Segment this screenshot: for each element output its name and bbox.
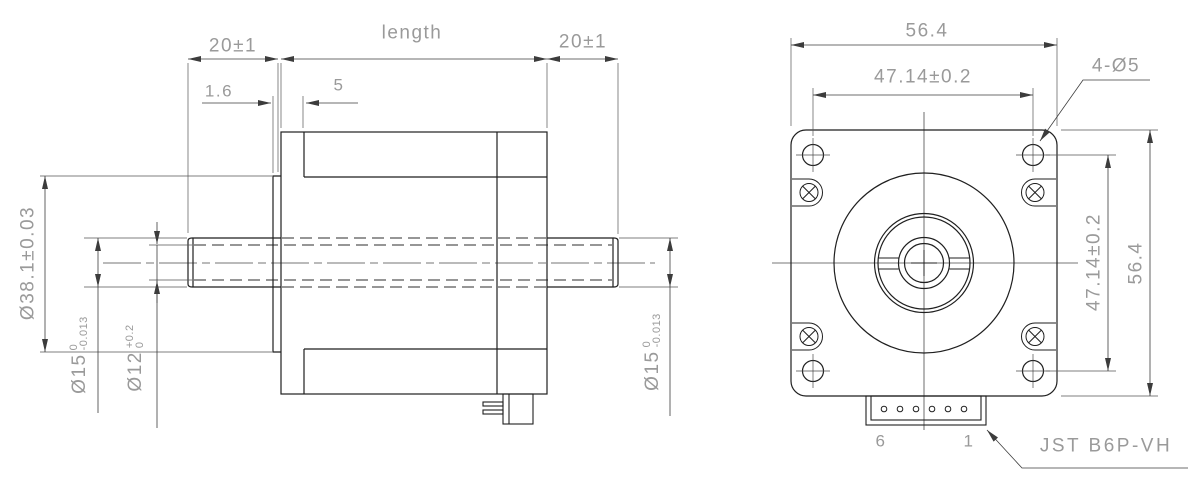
label-pin-6: 6 xyxy=(876,433,887,450)
pin-circle xyxy=(913,406,919,412)
label-mounting-holes: 4-Ø5 xyxy=(1092,57,1140,76)
front-view-geometry xyxy=(772,112,1078,430)
hidden-bore-lines xyxy=(194,245,612,280)
dim-label-height: 56.4 xyxy=(1127,242,1146,285)
screw-tab xyxy=(1021,323,1056,350)
tolerance-lower: 0 xyxy=(135,324,145,348)
front-connector-inner xyxy=(871,396,981,420)
dim-label-front-section: 5 xyxy=(334,77,345,94)
dim-label-rear-shaft-length: 20±1 xyxy=(559,33,607,52)
dim-label-shaft-diameter-right: Ø150-0.013 xyxy=(643,313,663,391)
screw-head xyxy=(800,328,818,346)
pin-circle xyxy=(945,406,951,412)
screw-head xyxy=(800,184,818,202)
front-view-centerlines xyxy=(772,112,1078,430)
dim-value: Ø15 xyxy=(642,350,663,390)
dim-label-boss-depth: 1.6 xyxy=(205,83,233,100)
side-connector-body xyxy=(503,394,533,424)
dim-value: Ø12 xyxy=(125,351,146,391)
pin-circle xyxy=(897,406,903,412)
technical-drawing-page: 20±1 length 20±1 1.6 5 Ø38.1±0.03 Ø150-0… xyxy=(0,0,1194,491)
tolerance-stack: 0-0.013 xyxy=(642,313,662,347)
side-connector-pin xyxy=(483,410,503,414)
dim-label-shaft-diameter-left: Ø150-0.013 xyxy=(70,316,90,394)
tolerance-stack: 0-0.013 xyxy=(69,316,89,350)
side-connector-pin xyxy=(483,402,503,406)
pin-circle xyxy=(961,406,967,412)
label-connector-type: JST B6P-VH xyxy=(1040,437,1172,456)
pin-circle xyxy=(881,406,887,412)
label-pin-1: 1 xyxy=(964,433,975,450)
tolerance-lower: -0.013 xyxy=(652,313,662,347)
drawing-canvas xyxy=(0,0,1194,491)
dim-label-front-shaft-length: 20±1 xyxy=(209,37,257,56)
dim-label-bore-diameter: Ø12+0.20 xyxy=(126,324,146,391)
dim-label-bolt-spacing-top: 47.14±0.2 xyxy=(874,68,972,87)
screw-tab xyxy=(1021,179,1056,206)
extension-lines xyxy=(40,63,678,352)
tolerance-lower: -0.013 xyxy=(79,316,89,350)
front-connector xyxy=(866,396,986,425)
pin-circle xyxy=(929,406,935,412)
dim-label-width: 56.4 xyxy=(906,22,949,41)
tolerance-stack: +0.20 xyxy=(125,324,145,348)
front-connector-outer xyxy=(866,396,986,425)
screw-head xyxy=(1026,328,1044,346)
dim-label-boss-diameter: Ø38.1±0.03 xyxy=(19,206,38,320)
screw-head xyxy=(1026,184,1044,202)
dim-value: Ø15 xyxy=(69,353,90,393)
dim-label-body-length: length xyxy=(382,24,443,43)
pilot-boss-outline xyxy=(273,176,281,352)
shaft-center-cross xyxy=(911,250,937,276)
dim-label-bolt-spacing-side: 47.14±0.2 xyxy=(1085,213,1104,311)
side-connector xyxy=(483,394,533,424)
leader-mounting-holes xyxy=(1040,80,1150,141)
